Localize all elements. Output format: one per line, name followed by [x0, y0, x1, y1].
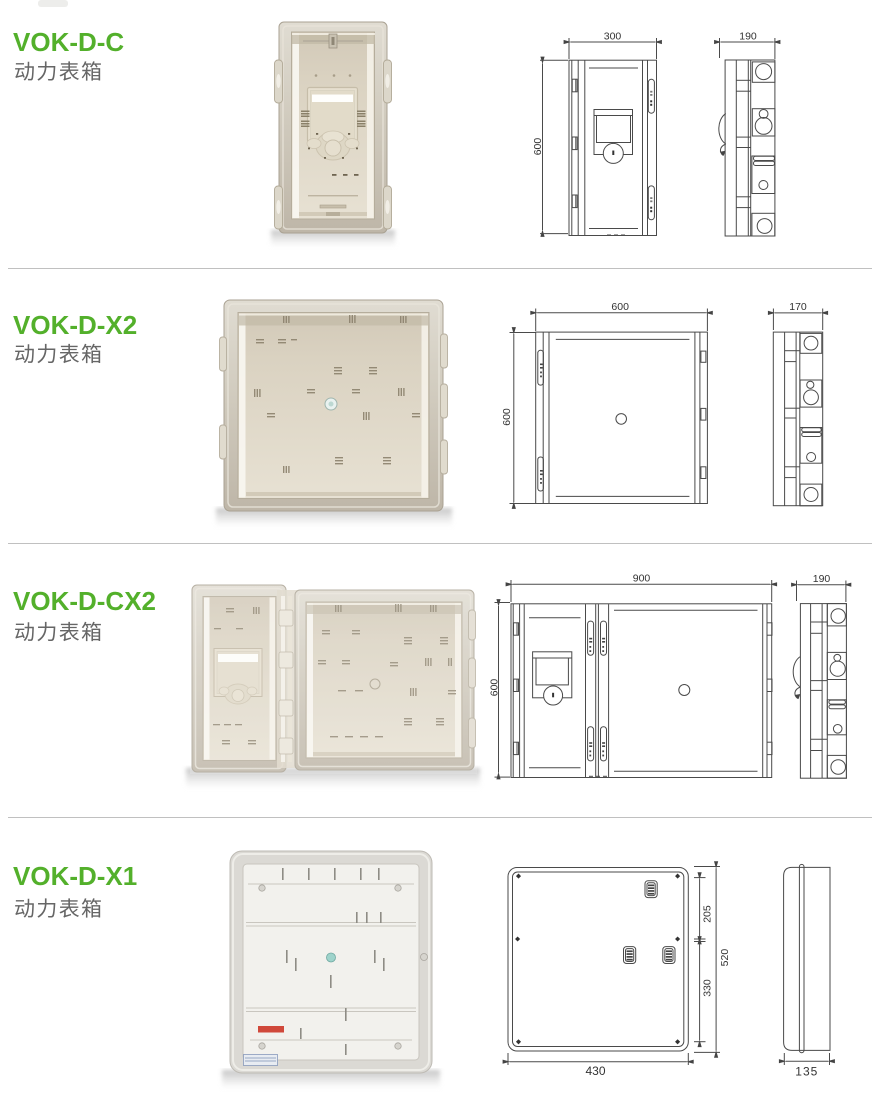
svg-text:330: 330	[702, 979, 714, 997]
svg-text:135: 135	[795, 1065, 818, 1079]
svg-text:190: 190	[813, 573, 831, 585]
svg-text:600: 600	[489, 679, 501, 697]
svg-text:600: 600	[501, 408, 513, 426]
svg-text:300: 300	[604, 31, 622, 43]
svg-text:205: 205	[702, 905, 714, 923]
svg-text:900: 900	[633, 573, 651, 585]
svg-text:170: 170	[789, 301, 807, 313]
svg-text:600: 600	[611, 301, 629, 313]
svg-text:190: 190	[739, 31, 757, 43]
svg-text:430: 430	[585, 1064, 605, 1078]
svg-text:600: 600	[532, 138, 544, 156]
svg-text:520: 520	[719, 949, 731, 967]
